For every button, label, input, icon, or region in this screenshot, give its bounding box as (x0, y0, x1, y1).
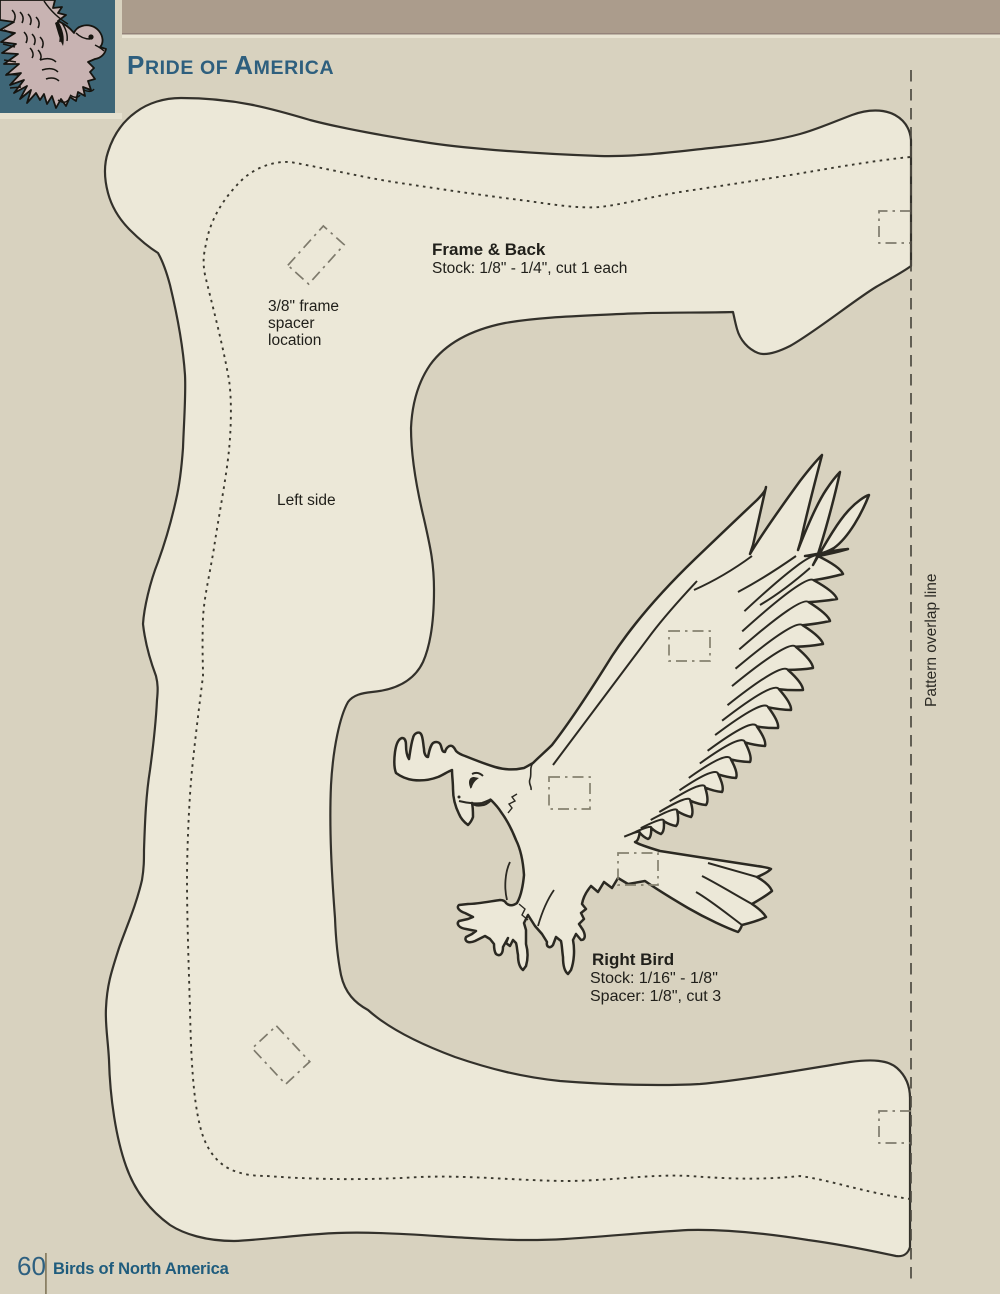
svg-text:Stock: 1/16" - 1/8": Stock: 1/16" - 1/8" (590, 970, 718, 987)
svg-text:spacer: spacer (268, 315, 315, 332)
svg-text:Right Bird: Right Bird (592, 950, 674, 969)
svg-text:Frame & Back: Frame & Back (432, 240, 546, 259)
svg-text:Spacer: 1/8", cut 3: Spacer: 1/8", cut 3 (590, 988, 721, 1005)
svg-text:Pattern overlap line: Pattern overlap line (923, 573, 940, 707)
svg-text:3/8" frame: 3/8" frame (268, 298, 339, 315)
svg-text:Stock: 1/8" - 1/4", cut 1 each: Stock: 1/8" - 1/4", cut 1 each (432, 260, 627, 277)
svg-text:60: 60 (17, 1251, 46, 1281)
svg-text:location: location (268, 332, 321, 349)
svg-text:Left side: Left side (277, 492, 336, 509)
svg-text:Birds of North America: Birds of North America (53, 1260, 230, 1278)
